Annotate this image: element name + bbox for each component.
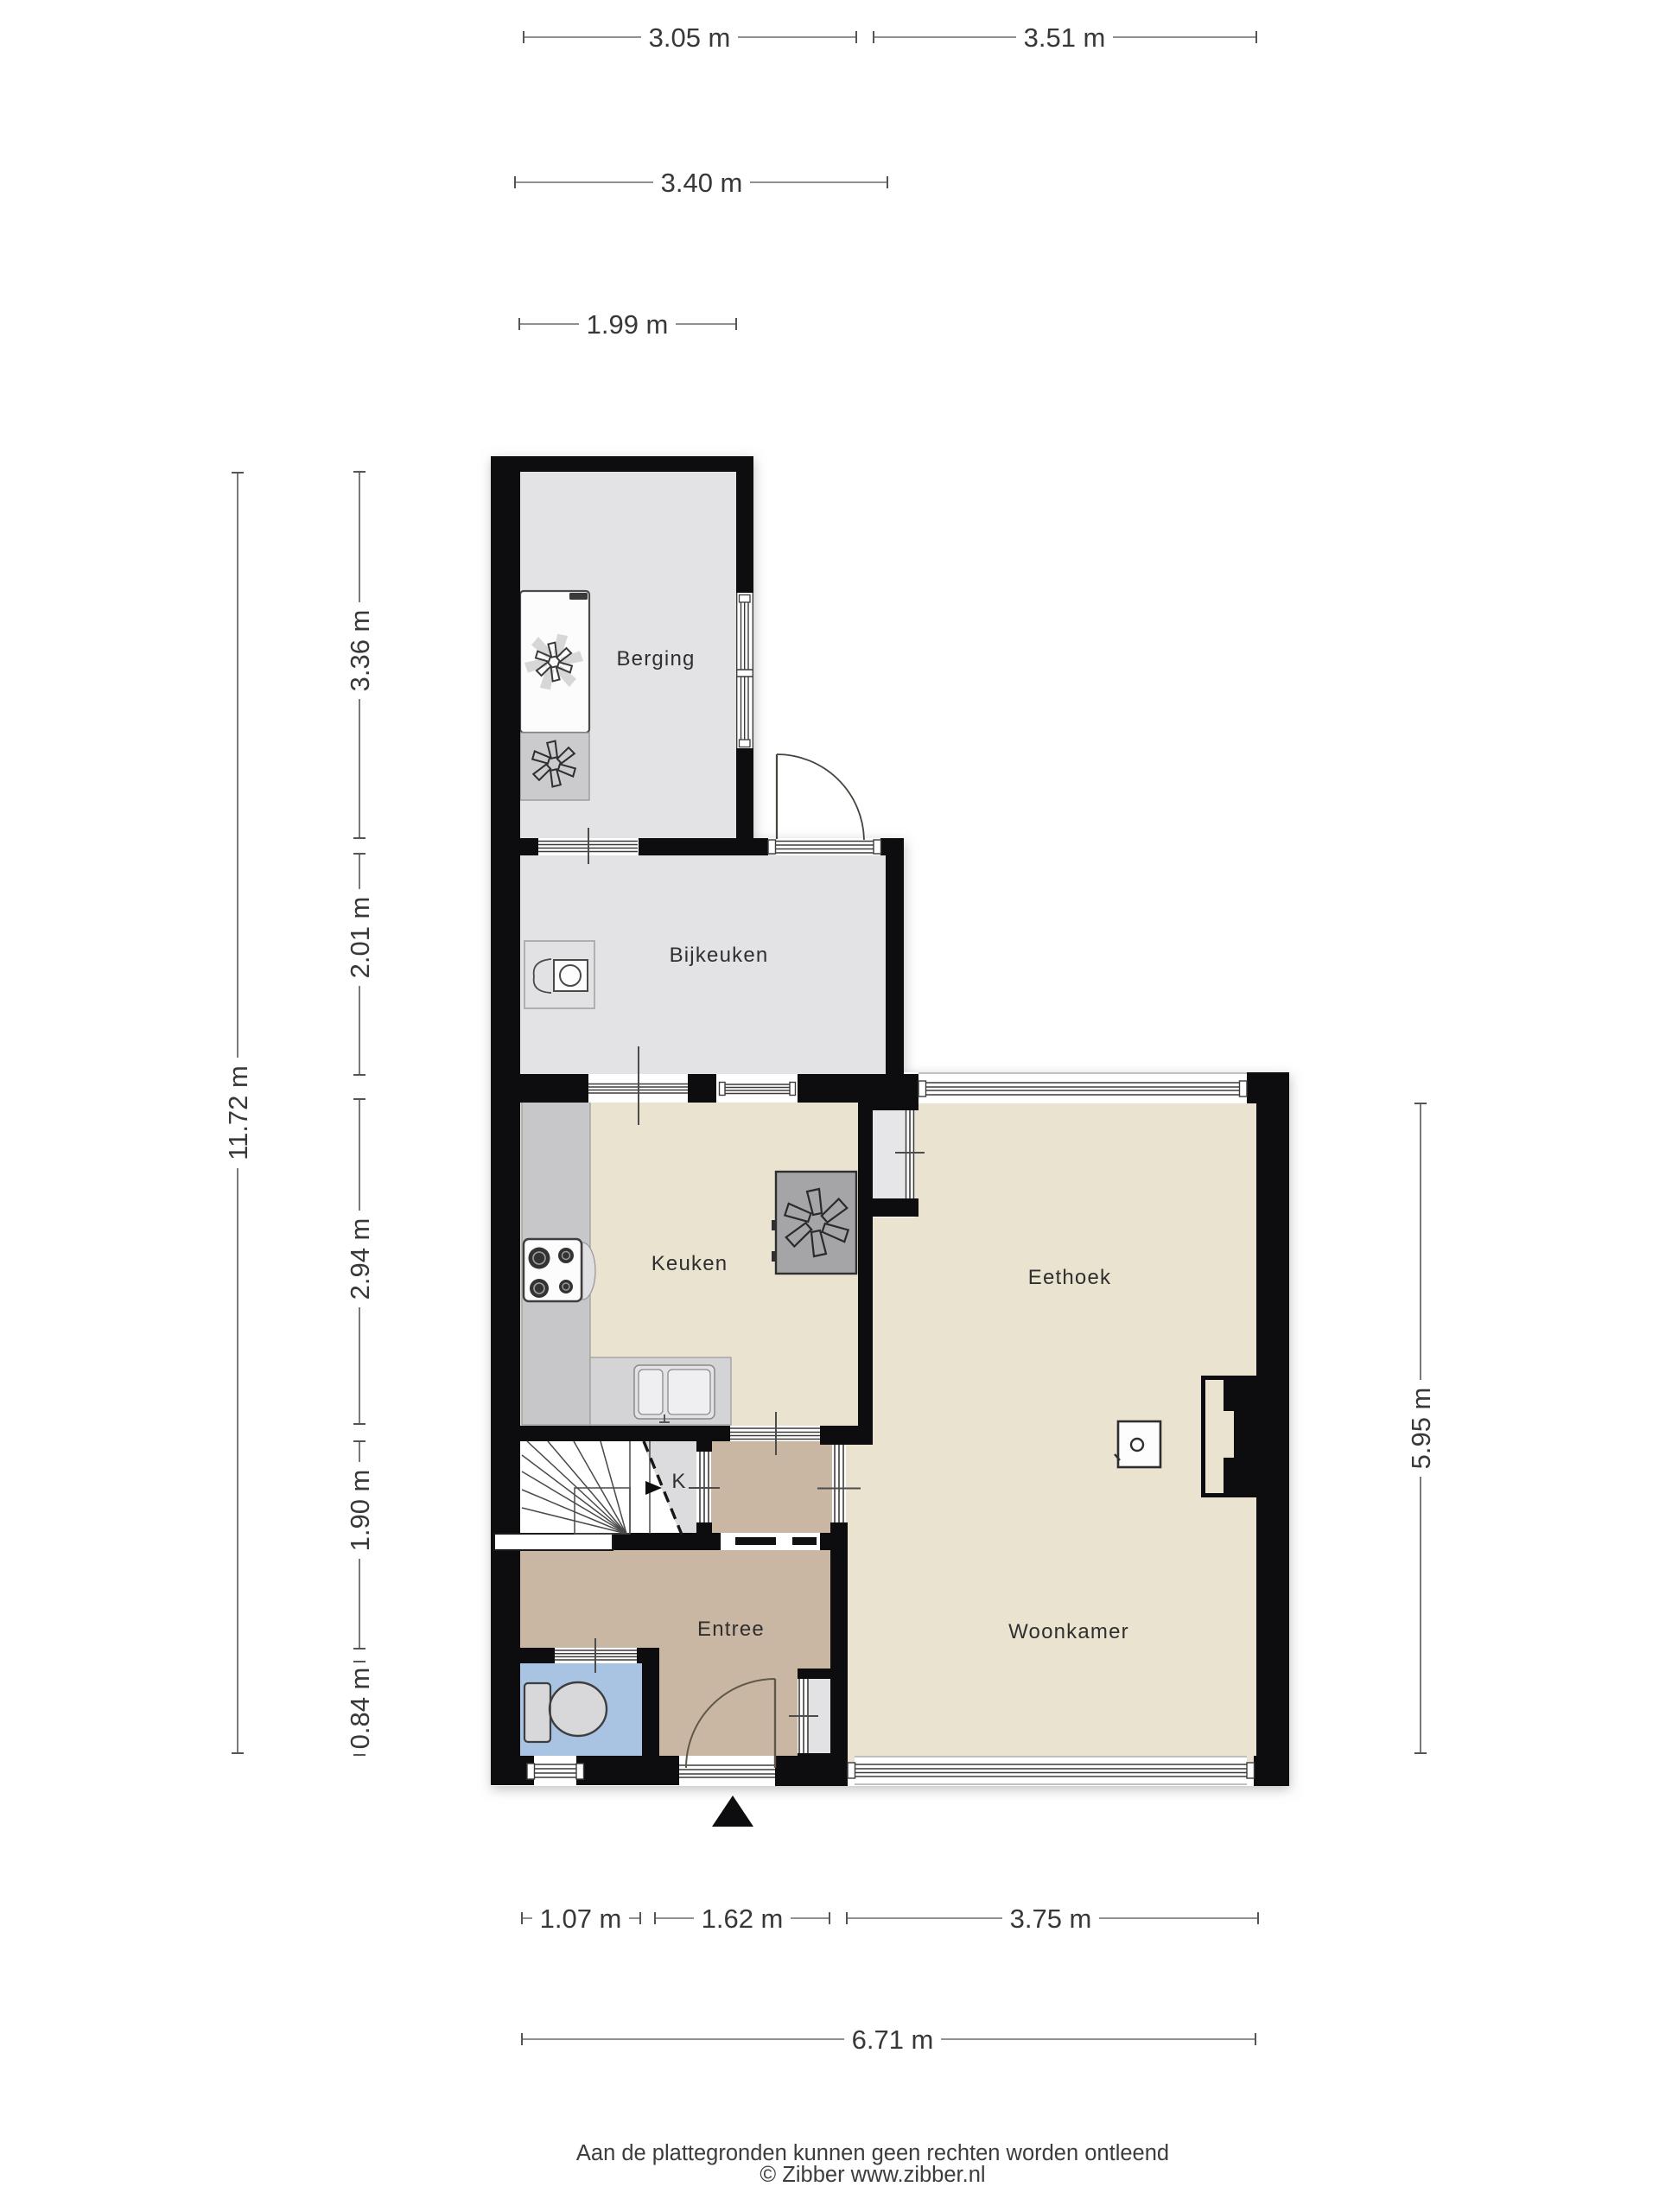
svg-text:5.95 m: 5.95 m (1406, 1388, 1436, 1470)
svg-text:Aan de plattegronden kunnen ge: Aan de plattegronden kunnen geen rechten… (576, 2141, 1169, 2165)
svg-text:Bijkeuken: Bijkeuken (670, 944, 769, 967)
svg-text:1.99 m: 1.99 m (587, 309, 669, 340)
svg-text:11.72 m: 11.72 m (223, 1065, 253, 1160)
svg-text:2.01 m: 2.01 m (345, 897, 375, 979)
svg-text:2.94 m: 2.94 m (345, 1218, 375, 1300)
svg-text:Keuken: Keuken (652, 1252, 728, 1275)
svg-text:3.40 m: 3.40 m (661, 168, 743, 198)
svg-text:Eethoek: Eethoek (1028, 1266, 1111, 1289)
svg-text:K: K (671, 1470, 686, 1493)
svg-text:6.71 m: 6.71 m (852, 2024, 934, 2055)
svg-text:1.07 m: 1.07 m (540, 1904, 622, 1934)
svg-text:1.62 m: 1.62 m (702, 1904, 784, 1934)
svg-text:1.90 m: 1.90 m (345, 1470, 375, 1552)
svg-text:Berging: Berging (616, 647, 695, 671)
svg-text:© Zibber www.zibber.nl: © Zibber www.zibber.nl (760, 2163, 985, 2187)
svg-text:3.36 m: 3.36 m (345, 610, 375, 692)
svg-text:3.51 m: 3.51 m (1024, 22, 1106, 53)
svg-text:3.75 m: 3.75 m (1010, 1904, 1092, 1934)
svg-text:3.05 m: 3.05 m (649, 22, 731, 53)
svg-text:0.84 m: 0.84 m (345, 1668, 375, 1750)
svg-text:Entree: Entree (697, 1618, 765, 1641)
svg-text:Woonkamer: Woonkamer (1008, 1620, 1129, 1643)
